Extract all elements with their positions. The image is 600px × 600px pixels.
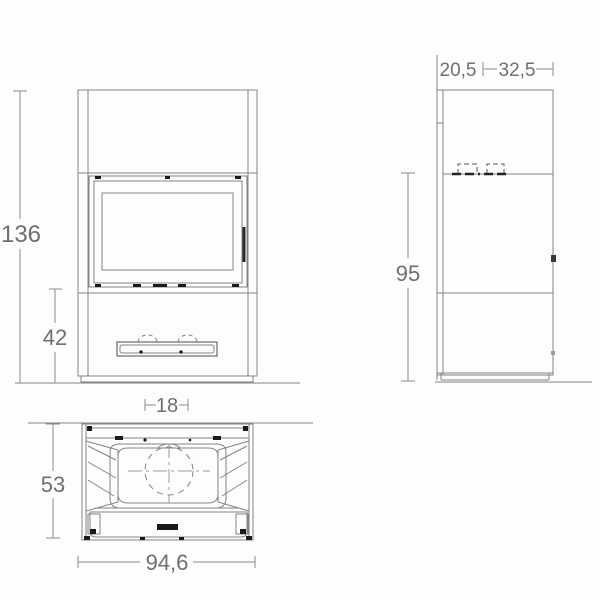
side-hinge-mark: [551, 351, 555, 355]
technical-drawing: 136 42 95 20,5 32,5 18 53 94,6: [0, 0, 600, 600]
front-door-glass: [102, 193, 233, 270]
label-plan-width: 94,6: [146, 550, 189, 575]
plan-side-hatching-left: [86, 441, 118, 511]
plan-chamber-outer: [110, 444, 226, 508]
plan-side-hatching-right: [218, 441, 249, 511]
label-side-depth-front: 32,5: [499, 60, 536, 81]
side-elevation-view: [435, 55, 592, 382]
plan-view: [28, 423, 313, 540]
front-drawer-arc-left: [138, 335, 157, 342]
dimension-lines: [13, 62, 553, 568]
plan-outer-body: [82, 424, 253, 540]
side-outer-body: [437, 90, 553, 375]
label-plan-depth: 53: [41, 472, 65, 497]
side-hidden-flue-brackets: [458, 164, 504, 174]
front-drawer-arc-right: [178, 335, 197, 342]
label-front-total-height: 136: [1, 221, 41, 248]
plan-front-marks: [84, 524, 252, 540]
dimension-labels: 136 42 95 20,5 32,5 18 53 94,6: [1, 60, 536, 575]
drawing-canvas: 136 42 95 20,5 32,5 18 53 94,6: [0, 0, 600, 600]
label-front-base-height: 42: [43, 325, 67, 350]
front-door-frame-inner: [94, 181, 242, 283]
front-plinth: [81, 376, 253, 382]
plan-handle: [157, 524, 178, 530]
label-side-depth-back: 20,5: [440, 60, 477, 81]
front-drawer-knob-right: [179, 350, 182, 353]
front-drawer-inner: [120, 345, 214, 353]
label-side-body-height: 95: [396, 261, 420, 286]
label-plan-flue-width: 18: [156, 395, 178, 417]
side-handle-mark: [551, 255, 556, 262]
front-outer-body: [78, 90, 257, 376]
front-drawer-knob-left: [139, 350, 142, 353]
front-drawer: [117, 342, 217, 356]
